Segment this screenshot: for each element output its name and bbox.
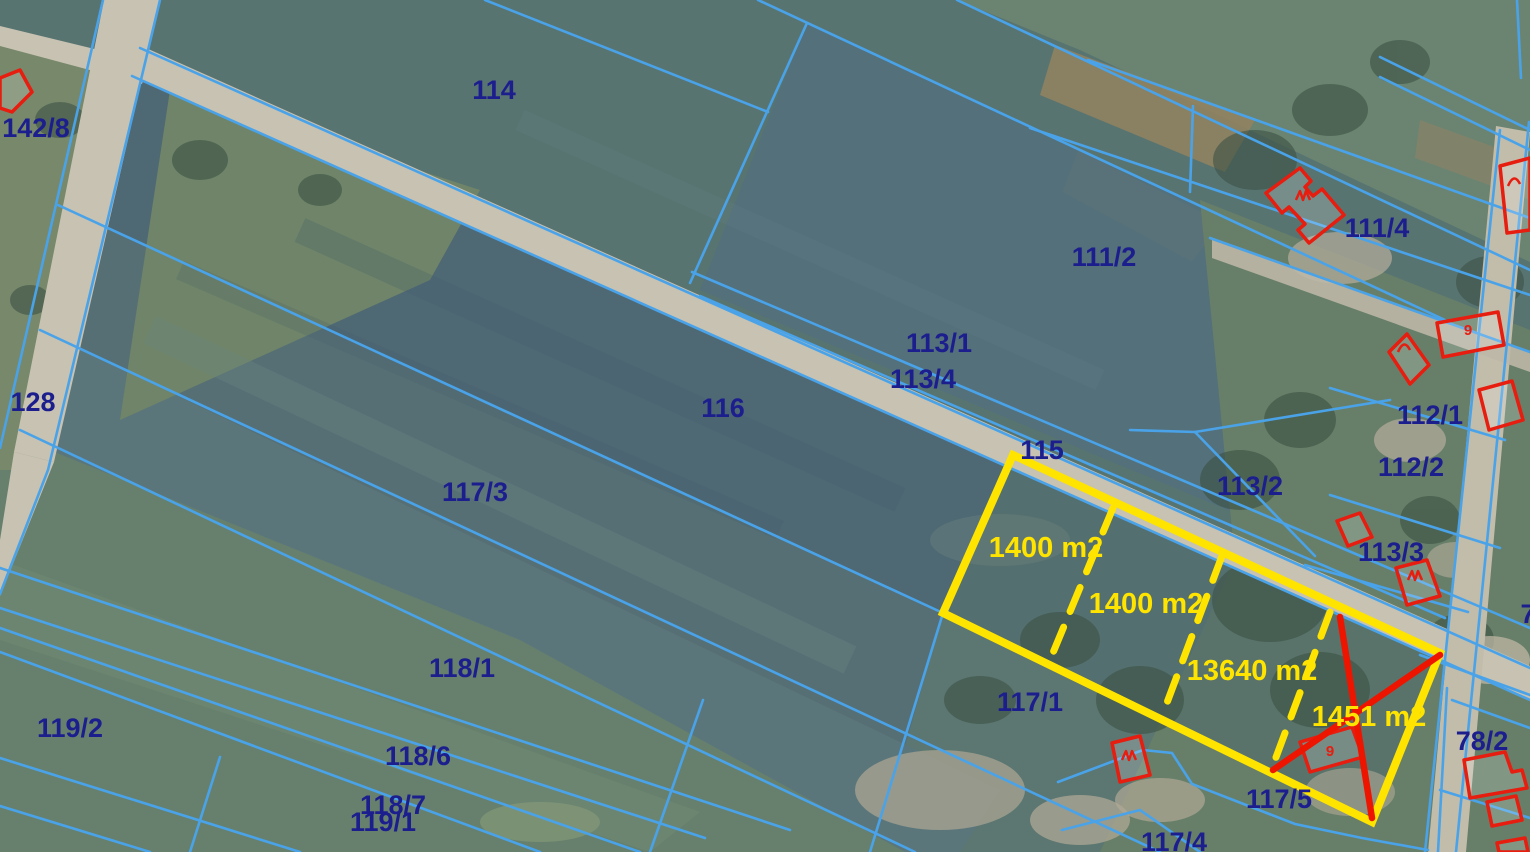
parcel-label-113-4: 113/4 (890, 364, 956, 394)
parcel-label-142-8: 142/8 (2, 113, 70, 143)
cadastral-aerial-map[interactable]: 9 9 142/8 114 128 116 117/3 113/1 113/4 … (0, 0, 1530, 852)
parcel-label-114: 114 (472, 75, 516, 105)
parcel-label-113-1: 113/1 (906, 328, 972, 358)
parcel-label-117-1: 117/1 (997, 687, 1063, 717)
parcel-label-118-6: 118/6 (385, 741, 451, 771)
parcel-label-111-4: 111/4 (1345, 213, 1410, 243)
parcel-label-112-1: 112/1 (1397, 400, 1463, 430)
parcel-label-112-2: 112/2 (1378, 452, 1444, 482)
area-label-13640: 13640 m2 (1187, 655, 1318, 687)
parcel-label-116: 116 (701, 393, 745, 423)
parcel-label-117-5: 117/5 (1246, 784, 1312, 814)
building-glyph-label: 9 (1464, 322, 1472, 339)
parcel-label-128: 128 (10, 387, 55, 417)
parcel-label-113-3: 113/3 (1358, 537, 1424, 567)
parcel-label-117-3: 117/3 (442, 477, 508, 507)
area-label-1451: 1451 m2 (1312, 701, 1427, 733)
parcel-label-118-1: 118/1 (429, 653, 495, 683)
cadastral-map-svg[interactable]: 9 9 142/8 114 128 116 117/3 113/1 113/4 … (0, 0, 1530, 852)
parcel-label-111-2: 111/2 (1072, 242, 1137, 272)
parcel-label-119-1: 119/1 (350, 807, 416, 837)
parcel-label-115: 115 (1020, 435, 1064, 465)
area-label-1400b: 1400 m2 (1089, 588, 1204, 620)
building-glyph-label: 9 (1326, 743, 1334, 760)
parcel-label-119-2: 119/2 (37, 713, 103, 743)
parcel-label-7-clipped: 7 (1520, 599, 1530, 629)
parcel-label-78-2: 78/2 (1456, 726, 1509, 756)
building (1500, 158, 1530, 233)
parcel-label-117-4: 117/4 (1141, 827, 1207, 852)
aerial-imagery (0, 0, 1530, 852)
area-label-1400a: 1400 m2 (989, 532, 1104, 564)
building (1487, 796, 1522, 826)
parcel-label-113-2: 113/2 (1217, 471, 1283, 501)
